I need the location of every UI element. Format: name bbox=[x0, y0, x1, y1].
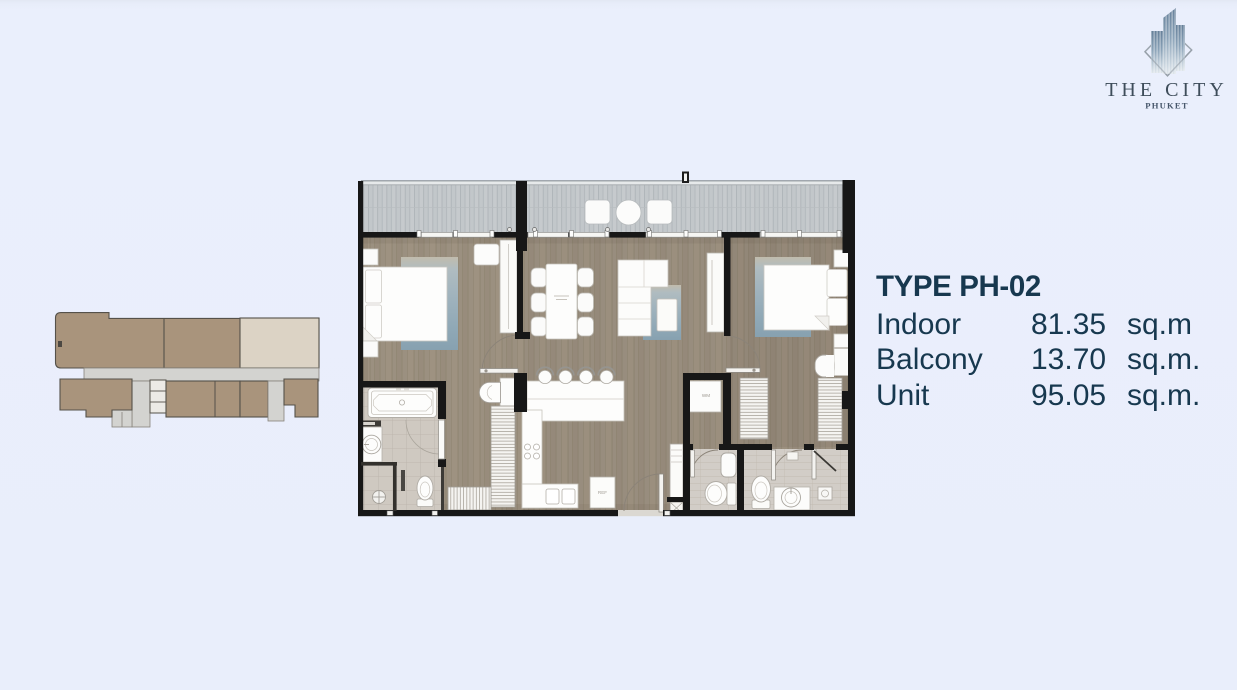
svg-text:WM: WM bbox=[702, 393, 710, 398]
svg-text:PHUKET: PHUKET bbox=[1145, 101, 1189, 111]
svg-text:THE CITY: THE CITY bbox=[1105, 79, 1228, 101]
svg-text:REF: REF bbox=[598, 490, 607, 495]
